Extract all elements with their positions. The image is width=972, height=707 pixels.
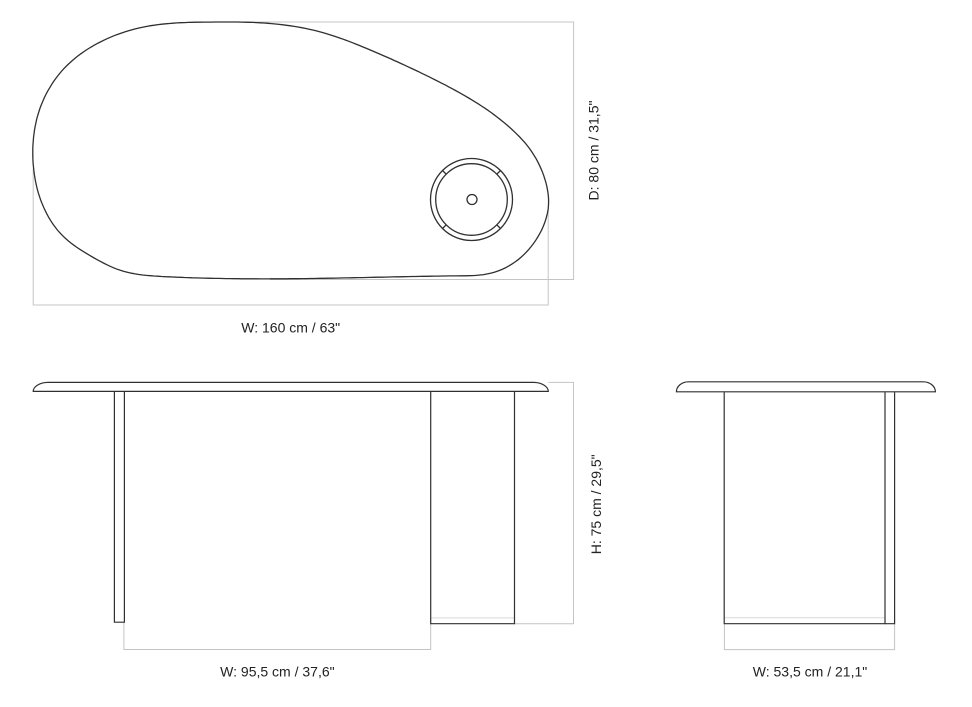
svg-text:D: 80 cm / 31,5": D: 80 cm / 31,5" bbox=[586, 101, 602, 201]
svg-text:W: 160 cm / 63": W: 160 cm / 63" bbox=[241, 319, 340, 335]
svg-text:W: 95,5 cm / 37,6": W: 95,5 cm / 37,6" bbox=[220, 663, 334, 679]
svg-text:H: 75 cm / 29,5": H: 75 cm / 29,5" bbox=[588, 454, 604, 554]
svg-text:W: 53,5 cm / 21,1": W: 53,5 cm / 21,1" bbox=[753, 663, 867, 679]
